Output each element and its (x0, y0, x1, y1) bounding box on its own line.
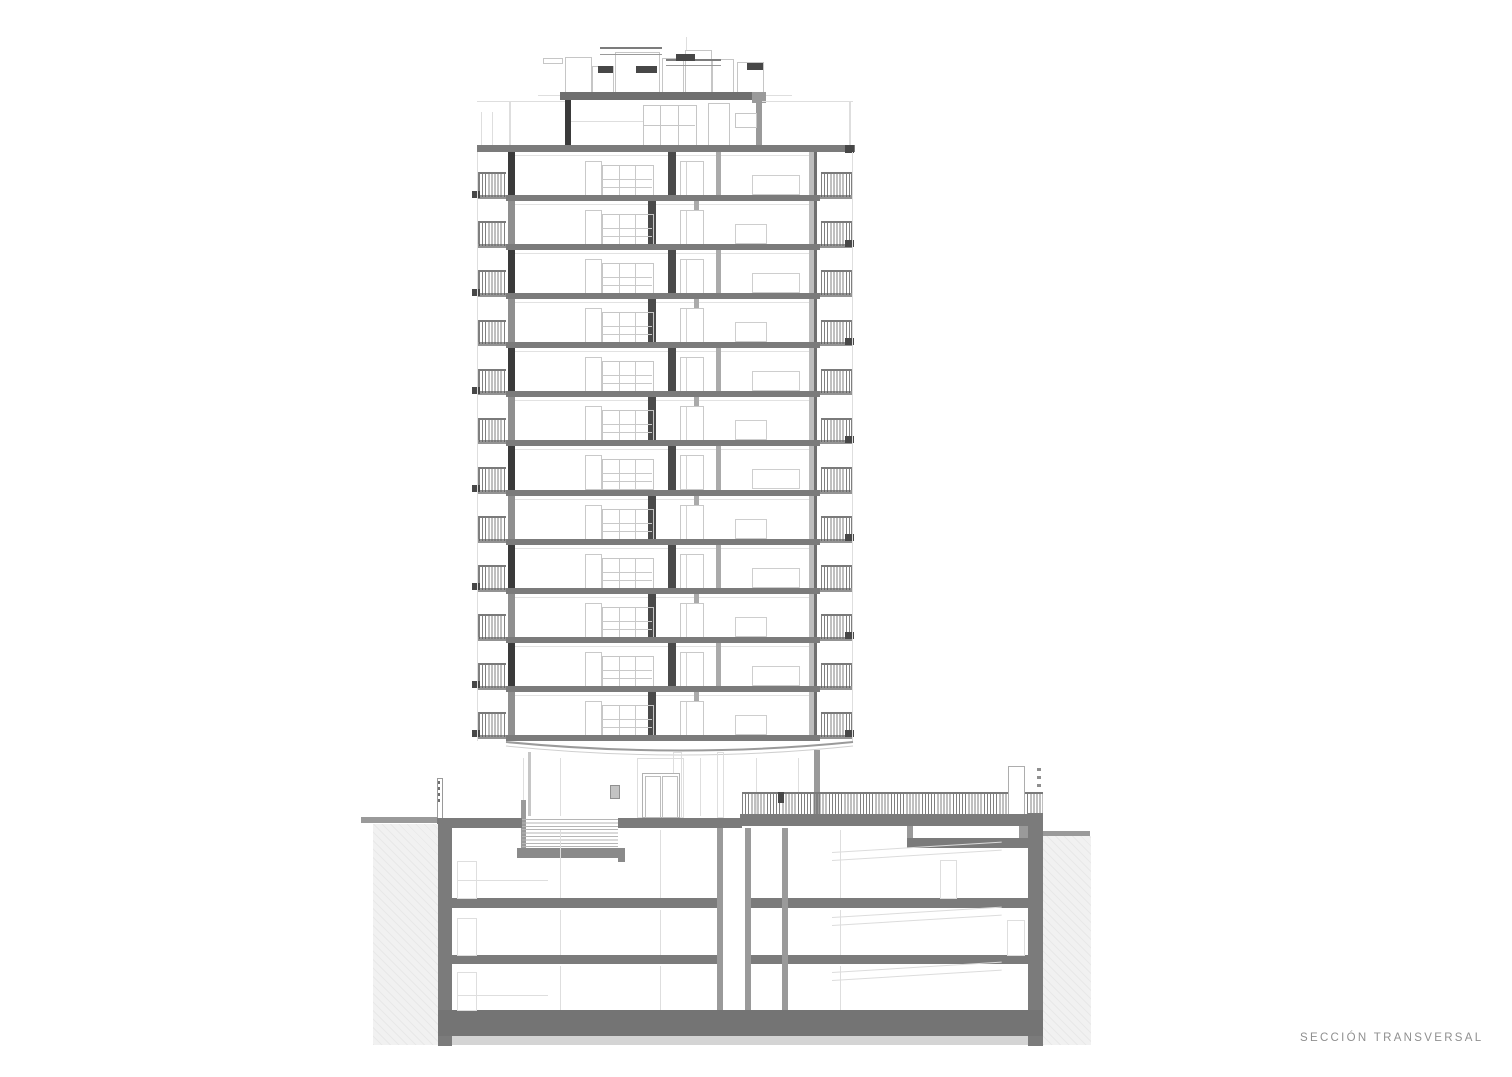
facade-fin-block-left (472, 289, 480, 296)
lobby-door-leaf (645, 776, 661, 818)
basement-door-frame (1007, 920, 1025, 956)
balcony-railing-left (479, 369, 506, 394)
roof-louvre-band (543, 58, 563, 64)
balcony-railing-left (479, 663, 506, 688)
penthouse-ceiling-line (571, 121, 643, 122)
core-wall (668, 250, 676, 293)
roof-edge-line (538, 95, 560, 96)
basement-partition-line (840, 966, 841, 1010)
balcony-railing-right (821, 663, 852, 688)
door-frame (680, 701, 704, 736)
closet (752, 273, 800, 293)
closet (752, 666, 800, 686)
penthouse-terrace-rail (477, 101, 565, 102)
balcony-railing-right (821, 369, 852, 394)
kitchen-unit-shelf (602, 285, 652, 286)
door-frame (680, 210, 704, 245)
terrace-railing-post-dark (778, 792, 784, 803)
wardrobe (585, 210, 602, 245)
exterior-wall-right (809, 299, 817, 342)
ceiling-line (515, 253, 809, 254)
tower-floor (460, 643, 860, 692)
exterior-wall-left (508, 152, 515, 195)
exterior-wall-right (809, 446, 817, 489)
basement-partition-line (560, 910, 561, 955)
fence-post-tick (438, 799, 440, 802)
elevator-shaft-wall (782, 828, 788, 1012)
ceiling-line (515, 597, 809, 598)
balcony-railing-left (479, 565, 506, 590)
roof-vent-cap (598, 66, 613, 73)
basement-partition-line (660, 830, 661, 898)
partition-wall (716, 348, 721, 391)
balcony-railing-left (479, 516, 506, 541)
kitchen-unit (602, 459, 654, 490)
kitchen-unit-shelf (602, 678, 652, 679)
kitchen-unit-shelf (602, 572, 652, 573)
door-frame (680, 161, 704, 196)
exterior-wall-left (508, 643, 515, 686)
wardrobe (585, 161, 602, 196)
wardrobe (585, 554, 602, 589)
tower-floor (460, 250, 860, 299)
exterior-wall-left (508, 250, 515, 293)
core-wall (668, 545, 676, 588)
tower-floor (460, 496, 860, 545)
stair-treads (522, 819, 618, 848)
facade-fin-block-left (472, 387, 480, 394)
exterior-wall-right (809, 397, 817, 440)
lobby-door-leaf (662, 776, 678, 818)
closet (735, 322, 767, 342)
tower-edge-line-left (477, 152, 478, 741)
exterior-wall-left (508, 397, 515, 440)
exterior-wall-right (809, 250, 817, 293)
basement-partition-line (660, 910, 661, 955)
kitchen-unit (602, 165, 654, 196)
ground-band-left (361, 817, 438, 823)
kitchen-unit-shelf (602, 719, 652, 720)
earth-left (373, 824, 438, 1045)
tower-floor (460, 545, 860, 594)
balcony-railing-left (479, 221, 506, 246)
core-wall (668, 348, 676, 391)
kitchen-unit (602, 509, 654, 540)
terrace-edge-tick (1037, 768, 1041, 771)
slab-opening-1 (723, 897, 745, 909)
wardrobe (585, 505, 602, 540)
antenna-line (686, 37, 687, 51)
kitchen-unit-shelf (602, 375, 652, 376)
podium-slab-center (618, 818, 742, 828)
exterior-wall-right (809, 692, 817, 735)
stair-landing (517, 848, 625, 858)
foundation-stub-left (438, 1036, 452, 1046)
closet (735, 617, 767, 637)
core-wall (668, 643, 676, 686)
kitchen-unit-shelf (602, 531, 652, 532)
door-frame (680, 505, 704, 540)
podium-slab-right (740, 814, 1043, 826)
tower-floor (460, 446, 860, 495)
closet (752, 568, 800, 588)
exterior-wall-right (809, 643, 817, 686)
partition-wall (716, 250, 721, 293)
balcony-railing-left (479, 320, 506, 345)
balcony-railing-left (479, 712, 506, 737)
lobby-faint-line (560, 758, 561, 816)
kitchen-unit (602, 656, 654, 687)
door-frame (680, 406, 704, 441)
tower-floor (460, 692, 860, 741)
foundation-stub-right (1028, 1036, 1043, 1046)
tower-floor (460, 152, 860, 201)
slab-opening-2 (723, 954, 745, 965)
exterior-wall-left (508, 201, 515, 244)
roof-slab (560, 92, 762, 100)
kitchen-unit-shelf (602, 228, 652, 229)
balcony-railing-left (479, 270, 506, 295)
partition-wall (716, 643, 721, 686)
ceiling-line (515, 646, 809, 647)
kitchen-unit-shelf (602, 580, 652, 581)
kitchen-unit (602, 410, 654, 441)
closet (752, 371, 800, 391)
exterior-wall-left (508, 348, 515, 391)
facade-fin-block-left (472, 191, 480, 198)
balcony-railing-right (821, 172, 852, 197)
door-frame (680, 603, 704, 638)
exterior-wall-left (508, 299, 515, 342)
closet (735, 715, 767, 735)
balcony-railing-right (821, 467, 852, 492)
foundation-slab (438, 1010, 1043, 1036)
door-frame (680, 554, 704, 589)
balcony-railing-right (821, 270, 852, 295)
exterior-wall-left (508, 594, 515, 637)
exterior-wall-left (508, 446, 515, 489)
ceiling-line (515, 400, 809, 401)
elevator-shaft-wall (717, 828, 723, 1012)
penthouse-floor-slab (477, 145, 855, 152)
balcony-railing-left (479, 418, 506, 443)
tower-floor (460, 397, 860, 446)
stair-parapet-line (523, 758, 524, 800)
partition-wall (716, 545, 721, 588)
roof-louvre-band (600, 47, 662, 55)
basement-partition-line (840, 830, 841, 898)
elevator-shaft-wall (745, 828, 751, 1012)
ceiling-line (515, 302, 809, 303)
balcony-railing-left (479, 467, 506, 492)
kitchen-unit-shelf (602, 621, 652, 622)
stair-landing-lip (618, 848, 625, 862)
sub-slab-stub-right (1019, 826, 1028, 838)
kitchen-unit-shelf (602, 523, 652, 524)
tower-floor (460, 348, 860, 397)
exterior-wall-right (809, 348, 817, 391)
penthouse-left-wall (565, 100, 571, 145)
terrace-rail-post (492, 112, 493, 145)
closet (735, 519, 767, 539)
basement-shelf-line (458, 880, 548, 881)
basement-partition-line (560, 830, 561, 898)
kitchen-unit (602, 607, 654, 638)
ceiling-line (515, 695, 809, 696)
roof-vent-cap (676, 54, 695, 61)
terrace-pillar (1008, 766, 1025, 816)
terrace-edge-tick (1037, 776, 1041, 779)
door-frame (680, 455, 704, 490)
tower-floor (460, 594, 860, 643)
kitchen-unit (602, 312, 654, 343)
wardrobe (585, 259, 602, 294)
core-wall (668, 152, 676, 195)
roof-vent-cap (636, 66, 657, 73)
exterior-wall-left (508, 496, 515, 539)
wardrobe (585, 603, 602, 638)
exterior-wall-right (809, 594, 817, 637)
roof-edge-line (766, 95, 792, 96)
exterior-wall-left (508, 692, 515, 735)
kitchen-unit (602, 705, 654, 736)
sub-slab-stub-left (907, 826, 913, 838)
kitchen-unit-shelf (602, 473, 652, 474)
ceiling-line (515, 351, 809, 352)
terrace-rail-post (481, 112, 482, 145)
basement-door-frame (457, 972, 477, 1011)
closet (735, 420, 767, 440)
penthouse-terrace-rail (762, 101, 853, 102)
ceiling-line (515, 204, 809, 205)
door-frame (680, 308, 704, 343)
kitchen-unit-shelf (602, 187, 652, 188)
closet (752, 469, 800, 489)
kitchen-unit-shelf (602, 481, 652, 482)
roof-equipment-box (565, 57, 592, 94)
tower-floor (460, 201, 860, 250)
ceiling-line (515, 499, 809, 500)
ceiling-line (515, 548, 809, 549)
terrace-railing (742, 792, 1043, 816)
kitchen-unit-shelf (602, 670, 652, 671)
basement-partition-line (560, 966, 561, 1010)
exterior-wall-left (508, 545, 515, 588)
kitchen-unit-shelf (602, 334, 652, 335)
tower-floor (460, 299, 860, 348)
wardrobe (585, 701, 602, 736)
terrace-rail-post (849, 101, 851, 145)
exterior-wall-right (809, 201, 817, 244)
fence-post-tick (438, 787, 440, 790)
exterior-wall-right (809, 496, 817, 539)
kitchen-unit-shelf (602, 236, 652, 237)
facade-fin-block-left (472, 681, 480, 688)
lobby-utility-box (610, 785, 620, 799)
kitchen-unit (602, 558, 654, 589)
fence-post-tick (438, 793, 440, 796)
basement-door-frame (457, 918, 477, 956)
door-frame (680, 652, 704, 687)
terrace-rail-post (509, 101, 511, 145)
facade-fin-block-left (472, 485, 480, 492)
wardrobe (585, 308, 602, 343)
kitchen-unit-shelf (602, 277, 652, 278)
balcony-railing-left (479, 172, 506, 197)
basement-shelf-line (458, 995, 548, 996)
foundation-strip (452, 1036, 1028, 1045)
kitchen-unit-shelf (602, 432, 652, 433)
closet (752, 175, 800, 195)
wardrobe (585, 652, 602, 687)
kitchen-unit-shelf (602, 727, 652, 728)
kitchen-unit-shelf (602, 179, 652, 180)
wardrobe (585, 357, 602, 392)
wardrobe (585, 406, 602, 441)
earth-right (1043, 836, 1091, 1045)
kitchen-unit (602, 263, 654, 294)
fence-post-tick (438, 781, 440, 784)
basement-partition-line (660, 966, 661, 1010)
closet (735, 224, 767, 244)
ceiling-line (515, 449, 809, 450)
caption: SECCIÓN TRANSVERSAL (1300, 1032, 1500, 1044)
tower-edge-line-right (852, 152, 853, 741)
partition-wall (716, 152, 721, 195)
partition-wall (716, 446, 721, 489)
penthouse-door (708, 103, 730, 147)
partition-line-ground (717, 752, 724, 818)
lobby-faint-line (700, 758, 701, 816)
ceiling-line (515, 155, 809, 156)
wardrobe (585, 455, 602, 490)
penthouse-closet-line (643, 125, 695, 126)
balcony-railing-left (479, 614, 506, 639)
exterior-wall-right (809, 152, 817, 195)
door-frame (680, 259, 704, 294)
penthouse-cabinet (735, 113, 757, 128)
kitchen-unit (602, 361, 654, 392)
facade-fin-block-left (472, 583, 480, 590)
roof-vent-cap (747, 63, 763, 70)
door-frame (680, 357, 704, 392)
core-wall (668, 446, 676, 489)
kitchen-unit-shelf (602, 383, 652, 384)
basement-cabinet (940, 860, 957, 899)
ground-column-left (528, 752, 531, 816)
penthouse-closet (643, 105, 697, 147)
exterior-wall-right (809, 545, 817, 588)
kitchen-unit-shelf (602, 629, 652, 630)
kitchen-unit-shelf (602, 326, 652, 327)
terrace-edge-tick (1037, 784, 1041, 787)
roof-equipment-box (615, 52, 660, 94)
kitchen-unit-shelf (602, 424, 652, 425)
balcony-railing-right (821, 565, 852, 590)
drawing-sheet: SECCIÓN TRANSVERSAL (0, 0, 1512, 1077)
kitchen-unit (602, 214, 654, 245)
fence-post-left (437, 778, 443, 819)
